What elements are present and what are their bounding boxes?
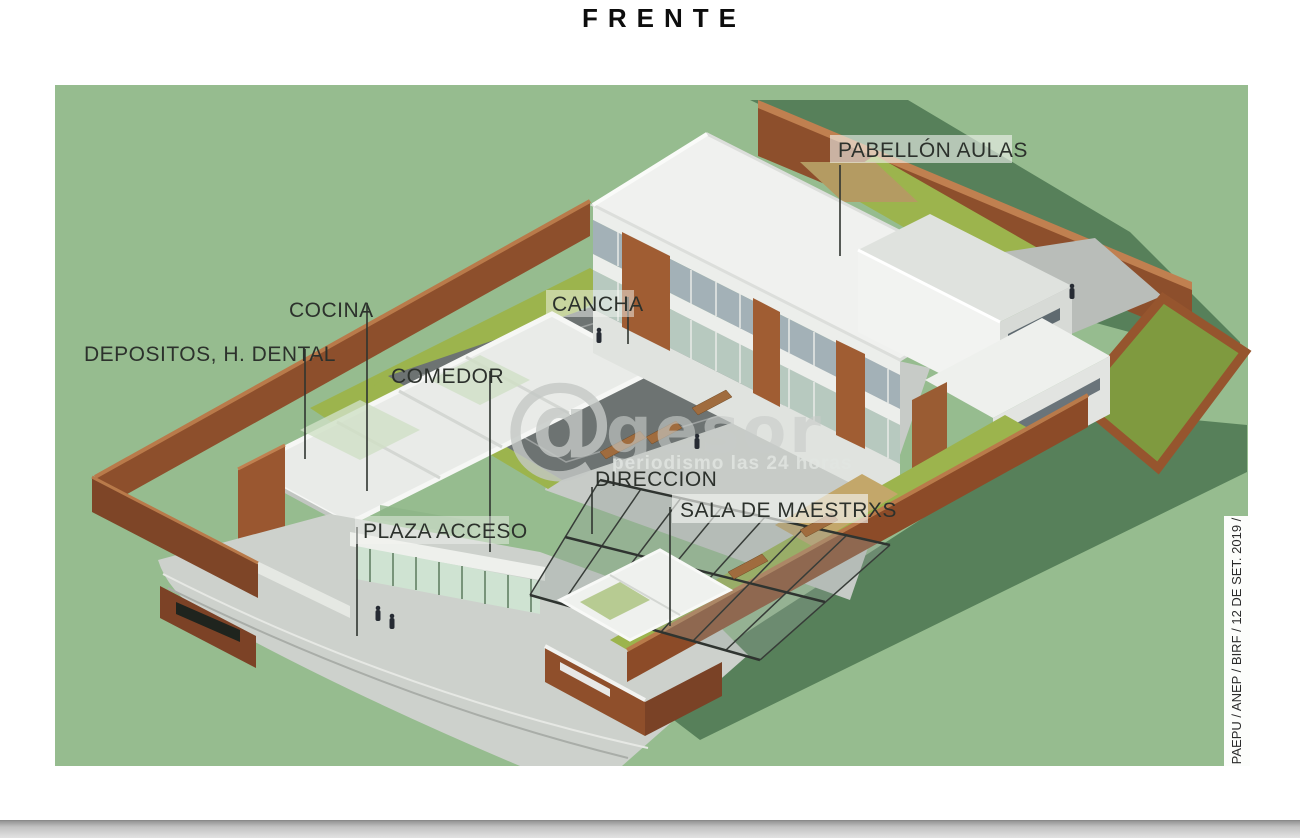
label-sala-de-maestrxs: SALA DE MAESTRXS bbox=[680, 499, 897, 522]
person-figure bbox=[390, 614, 395, 629]
bottom-scrollbar[interactable] bbox=[0, 820, 1300, 838]
brick-pier bbox=[836, 340, 865, 449]
label-cancha: CANCHA bbox=[552, 293, 644, 316]
side-caption: PAEPU / ANEP / BIRF / 12 DE SET. 2019 / bbox=[1224, 516, 1250, 766]
label-depositos-h-dental: DEPOSITOS, H. DENTAL bbox=[84, 343, 336, 366]
label-plaza-acceso: PLAZA ACCESO bbox=[363, 520, 528, 543]
person-figure bbox=[376, 606, 381, 621]
label-direccion: DIRECCION bbox=[595, 468, 717, 491]
site-plan-rendering: FRENTE bbox=[0, 0, 1300, 838]
scrollbar-track[interactable] bbox=[0, 821, 1300, 838]
brick-pier bbox=[753, 298, 780, 407]
person-figure bbox=[1070, 284, 1075, 299]
person-figure bbox=[597, 328, 602, 343]
label-pabellon-aulas: PABELLÓN AULAS bbox=[838, 139, 1028, 162]
side-caption-text: PAEPU / ANEP / BIRF / 12 DE SET. 2019 / bbox=[1229, 517, 1244, 764]
architectural-rendering-page: FRENTE bbox=[0, 0, 1300, 838]
label-comedor: COMEDOR bbox=[391, 365, 504, 388]
label-cocina: COCINA bbox=[289, 299, 374, 322]
page-title: FRENTE bbox=[582, 3, 746, 33]
